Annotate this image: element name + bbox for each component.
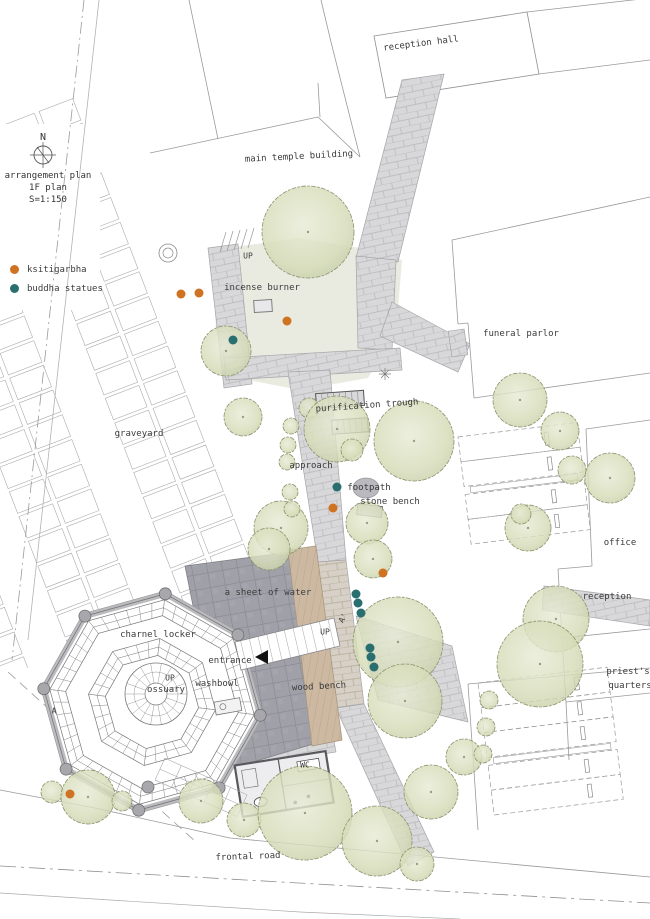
north-label: N: [40, 132, 46, 143]
legend-item-ksitigarbha: ksitigarbha: [10, 260, 103, 279]
ksitigarbha-marker: [329, 504, 338, 513]
title-block: N arrangement plan 1F plan S=1:150: [0, 128, 96, 206]
legend-label: buddha statues: [27, 284, 103, 294]
label-wc: WC: [300, 761, 310, 770]
label-section-a: A: [52, 707, 57, 716]
label-up-ossuary: UP: [165, 674, 175, 683]
label-priests-quarters-1: priest's: [606, 667, 649, 677]
label-charnel-locker: charnel locker: [120, 630, 196, 640]
buddha-statue-marker: [357, 609, 366, 618]
label-office: office: [604, 538, 637, 548]
main-temple-outline: [150, 0, 360, 157]
ksitigarbha-marker: [379, 569, 388, 578]
legend-label: ksitigarbha: [27, 265, 87, 275]
buddha-statue-marker: [354, 599, 363, 608]
ksitigarbha-marker: [177, 290, 186, 299]
buddha-statue-marker: [333, 483, 342, 492]
ksitigarbha-dot-icon: [10, 265, 19, 274]
buddha-statue-marker: [366, 644, 375, 653]
ksitigarbha-marker: [195, 289, 204, 298]
label-stone-bench: stone bench: [360, 497, 420, 507]
funeral-parlor-outline: [452, 197, 650, 398]
buddha-statues-dot-icon: [10, 284, 19, 293]
ksitigarbha-marker: [66, 790, 75, 799]
label-graveyard: graveyard: [115, 429, 164, 439]
buddha-statue-marker: [229, 336, 238, 345]
label-ossuary: ossuary: [147, 685, 185, 695]
buddha-statue-marker: [352, 590, 361, 599]
plan-title-line3: S=1:150: [0, 194, 96, 206]
plan-title-line2: 1F plan: [0, 182, 96, 194]
site-plan-page: { "title_block": { "north_label": "N", "…: [0, 0, 650, 919]
label-sheet-of-water: a sheet of water: [225, 588, 312, 598]
well-feature: [159, 244, 177, 262]
label-funeral-parlor: funeral parlor: [483, 329, 559, 339]
reception-hall-outline: [374, 12, 539, 98]
buddha-statue-marker: [370, 663, 379, 672]
incense-burner-object: [254, 300, 273, 313]
north-compass-icon: N: [0, 128, 96, 170]
label-approach: approach: [289, 461, 332, 471]
label-footpath: footpath: [347, 483, 390, 493]
buddha-statue-marker: [367, 653, 376, 662]
path-from-reception-hall: [356, 74, 444, 262]
label-washbowl: washbowl: [195, 679, 238, 689]
label-up-plaza: UP: [243, 252, 253, 261]
plan-title-line1: arrangement plan: [0, 170, 96, 182]
label-incense-burner: incense burner: [224, 283, 300, 293]
label-entrance: entrance: [208, 656, 251, 666]
site-plan-canvas: [0, 0, 650, 919]
legend-item-buddha-statues: buddha statues: [10, 279, 103, 298]
label-up-bridge: UP: [320, 628, 330, 637]
ksitigarbha-marker: [283, 317, 292, 326]
label-priests-quarters-2: quarters: [608, 681, 650, 691]
corridor-lines: [527, 0, 650, 74]
legend: ksitigarbha buddha statues: [10, 260, 103, 298]
funeral-parlor-step: [448, 329, 467, 357]
site-boundary-dash: [12, 0, 84, 660]
label-reception: reception: [583, 592, 632, 602]
site-boundary-left: [28, 0, 99, 640]
